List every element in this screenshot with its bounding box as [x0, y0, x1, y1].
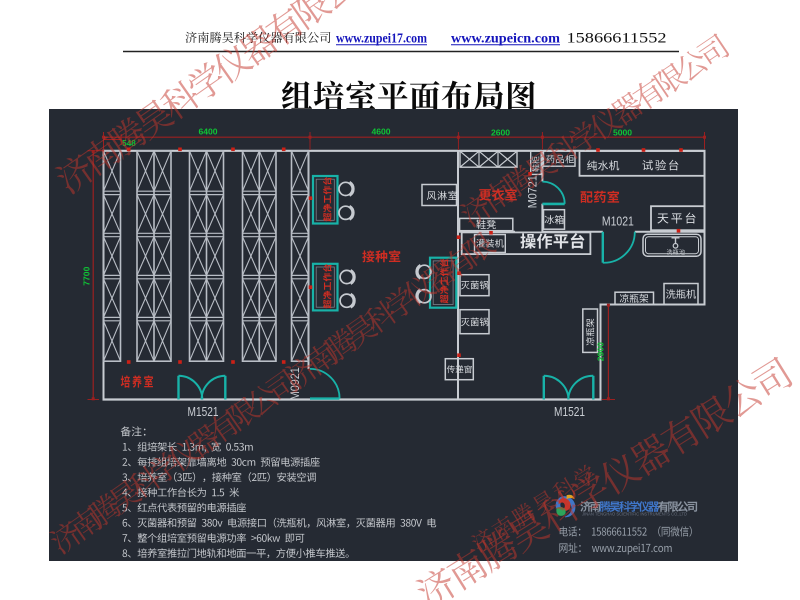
svg-text:www.zupeicn.com: www.zupeicn.com — [451, 32, 560, 47]
svg-text:M1021: M1021 — [602, 214, 634, 228]
svg-text:15866611552: 15866611552 — [567, 31, 667, 47]
svg-text:M1521: M1521 — [188, 405, 219, 419]
svg-text:M0721: M0721 — [527, 175, 539, 208]
svg-text:2600: 2600 — [491, 127, 510, 137]
svg-text:M0921: M0921 — [290, 367, 302, 400]
svg-text:4600: 4600 — [371, 126, 390, 136]
svg-text:548: 548 — [122, 139, 136, 148]
svg-text:M1521: M1521 — [554, 405, 585, 419]
svg-text:JINAN TENGHAO SCIENTIFIC INSTR: JINAN TENGHAO SCIENTIFIC INSTRUMENTS CO.… — [582, 511, 688, 516]
svg-text:www.zupei17.com: www.zupei17.com — [336, 32, 427, 47]
svg-text:6400: 6400 — [198, 126, 217, 136]
svg-text:5000: 5000 — [613, 127, 632, 137]
svg-text:7700: 7700 — [82, 266, 92, 285]
svg-text:2900: 2900 — [596, 342, 606, 361]
